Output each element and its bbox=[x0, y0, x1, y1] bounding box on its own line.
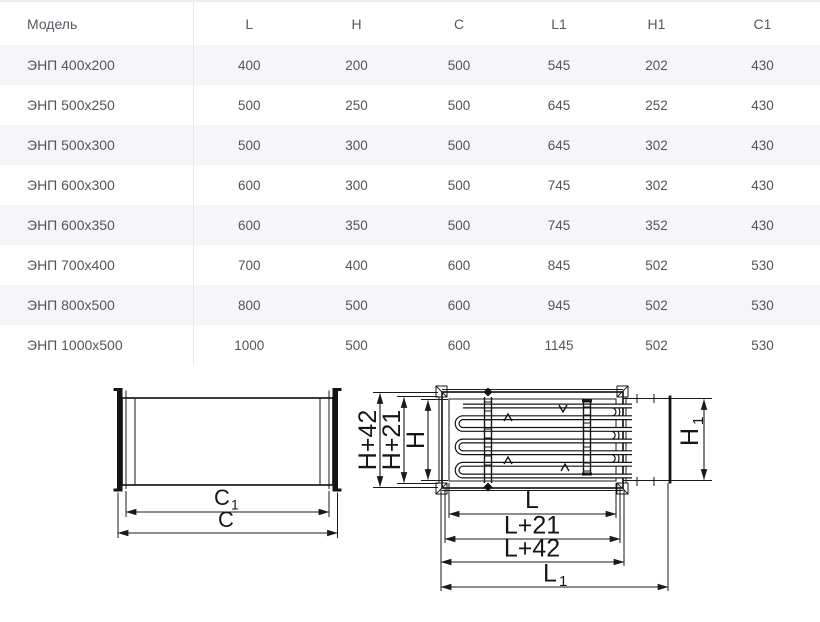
cell-value: 430 bbox=[705, 45, 820, 85]
col-header-c: C bbox=[408, 1, 510, 45]
dim-label-c: C bbox=[218, 507, 234, 532]
cell-value: 600 bbox=[408, 245, 510, 285]
drawings-canvas: C 1 C bbox=[0, 366, 820, 622]
dim-h1: H 1 bbox=[676, 400, 707, 480]
cell-model: ЭНП 500x250 bbox=[0, 85, 193, 125]
cell-value: 252 bbox=[608, 85, 705, 125]
cell-value: 500 bbox=[408, 205, 510, 245]
table-row: ЭНП 600x300 600 300 500 745 302 430 bbox=[0, 165, 820, 205]
table-row: ЭНП 700x400 700 400 600 845 502 530 bbox=[0, 245, 820, 285]
dim-label-l1-sub: 1 bbox=[559, 573, 567, 590]
duct-side-view-drawing: C 1 C bbox=[114, 388, 342, 538]
cell-value: 250 bbox=[305, 85, 408, 125]
cell-value: 502 bbox=[608, 245, 705, 285]
heating-element-coil bbox=[457, 406, 632, 476]
heater-top-view-drawing: H+42 H+21 H H 1 bbox=[354, 386, 712, 591]
cell-value: 430 bbox=[705, 205, 820, 245]
bolt-marker-top bbox=[484, 388, 493, 397]
dim-label-l42: L+42 bbox=[504, 535, 560, 563]
cell-value: 1145 bbox=[510, 325, 608, 365]
cell-value: 200 bbox=[305, 45, 408, 85]
dim-label-h: H bbox=[402, 431, 430, 449]
cell-value: 430 bbox=[705, 125, 820, 165]
cell-value: 500 bbox=[408, 125, 510, 165]
dim-l1: L 1 bbox=[441, 560, 668, 591]
table-header: Модель L H C L1 H1 C1 bbox=[0, 1, 820, 45]
duct-body bbox=[122, 398, 333, 485]
cell-value: 645 bbox=[510, 85, 608, 125]
dim-c: C bbox=[118, 507, 338, 533]
cell-value: 530 bbox=[705, 285, 820, 325]
table-row: ЭНП 500x250 500 250 500 645 252 430 bbox=[0, 85, 820, 125]
table-row: ЭНП 1000x500 1000 500 600 1145 502 530 bbox=[0, 325, 820, 365]
dim-h: H bbox=[402, 401, 430, 480]
cell-value: 500 bbox=[408, 45, 510, 85]
cell-model: ЭНП 500x300 bbox=[0, 125, 193, 165]
technical-drawings: C 1 C bbox=[0, 366, 820, 622]
table-row: ЭНП 500x300 500 300 500 645 302 430 bbox=[0, 125, 820, 165]
cell-value: 745 bbox=[510, 165, 608, 205]
duct-flange-left bbox=[114, 388, 136, 492]
cell-value: 430 bbox=[705, 165, 820, 205]
cell-value: 545 bbox=[510, 45, 608, 85]
cell-value: 300 bbox=[305, 165, 408, 205]
dim-label-h1-sub: 1 bbox=[690, 417, 707, 425]
cell-value: 400 bbox=[193, 45, 305, 85]
table-row: ЭНП 600x350 600 350 500 745 352 430 bbox=[0, 205, 820, 245]
cell-value: 500 bbox=[193, 85, 305, 125]
cell-model: ЭНП 600x350 bbox=[0, 205, 193, 245]
cell-value: 530 bbox=[705, 325, 820, 365]
cell-value: 500 bbox=[193, 125, 305, 165]
cell-value: 530 bbox=[705, 245, 820, 285]
col-header-l: L bbox=[193, 1, 305, 45]
cell-model: ЭНП 700x400 bbox=[0, 245, 193, 285]
cell-value: 600 bbox=[193, 205, 305, 245]
duct-flange-right bbox=[320, 388, 342, 492]
cell-value: 600 bbox=[408, 285, 510, 325]
table-body: ЭНП 400x200 400 200 500 545 202 430 ЭНП … bbox=[0, 45, 820, 365]
cell-value: 600 bbox=[408, 325, 510, 365]
cell-value: 500 bbox=[408, 85, 510, 125]
cell-value: 1000 bbox=[193, 325, 305, 365]
cell-value: 500 bbox=[305, 325, 408, 365]
cell-value: 300 bbox=[305, 125, 408, 165]
cell-model: ЭНП 1000x500 bbox=[0, 325, 193, 365]
cell-value: 745 bbox=[510, 205, 608, 245]
product-dimensions-page: Модель L H C L1 H1 C1 ЭНП 400x200 400 20… bbox=[0, 0, 820, 622]
cell-value: 500 bbox=[305, 285, 408, 325]
cell-value: 645 bbox=[510, 125, 608, 165]
cell-value: 502 bbox=[608, 325, 705, 365]
cell-value: 430 bbox=[705, 85, 820, 125]
col-header-c1: C1 bbox=[705, 1, 820, 45]
col-header-model: Модель bbox=[0, 1, 193, 45]
cell-value: 352 bbox=[608, 205, 705, 245]
dim-label-h1: H bbox=[676, 428, 704, 446]
cell-value: 202 bbox=[608, 45, 705, 85]
flow-chevrons bbox=[504, 405, 569, 471]
cell-value: 502 bbox=[608, 285, 705, 325]
cell-value: 845 bbox=[510, 245, 608, 285]
cell-value: 500 bbox=[408, 165, 510, 205]
dim-label-l: L bbox=[525, 486, 539, 514]
cell-value: 350 bbox=[305, 205, 408, 245]
col-header-l1: L1 bbox=[510, 1, 608, 45]
dimensions-table: Модель L H C L1 H1 C1 ЭНП 400x200 400 20… bbox=[0, 0, 820, 365]
cell-value: 302 bbox=[608, 125, 705, 165]
cell-model: ЭНП 400x200 bbox=[0, 45, 193, 85]
table-row: ЭНП 400x200 400 200 500 545 202 430 bbox=[0, 45, 820, 85]
col-header-h: H bbox=[305, 1, 408, 45]
cell-value: 800 bbox=[193, 285, 305, 325]
cell-value: 400 bbox=[305, 245, 408, 285]
header-row: Модель L H C L1 H1 C1 bbox=[0, 1, 820, 45]
table-row: ЭНП 800x500 800 500 600 945 502 530 bbox=[0, 285, 820, 325]
cell-value: 600 bbox=[193, 165, 305, 205]
col-header-h1: H1 bbox=[608, 1, 705, 45]
cell-value: 302 bbox=[608, 165, 705, 205]
cell-value: 700 bbox=[193, 245, 305, 285]
cell-model: ЭНП 800x500 bbox=[0, 285, 193, 325]
cell-value: 945 bbox=[510, 285, 608, 325]
dim-label-l1: L bbox=[543, 560, 557, 588]
cell-model: ЭНП 600x300 bbox=[0, 165, 193, 205]
